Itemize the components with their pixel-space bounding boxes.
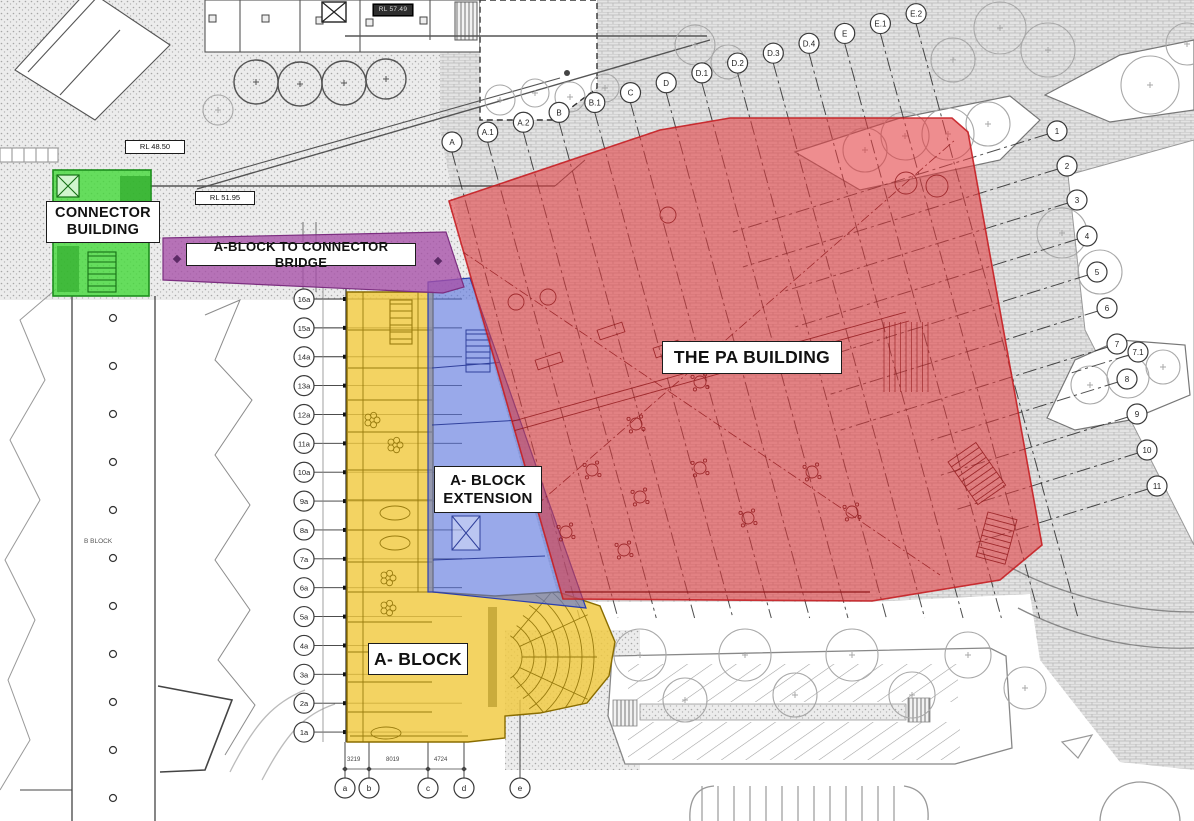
svg-text:1a: 1a xyxy=(300,728,309,737)
grid-bubble-10a: 10a xyxy=(294,462,314,482)
grid-bubble-e: e xyxy=(510,778,530,798)
svg-text:E.1: E.1 xyxy=(874,20,887,29)
svg-text:10a: 10a xyxy=(298,468,311,477)
svg-text:E: E xyxy=(842,29,847,38)
label-pa-building: THE PA BUILDING xyxy=(662,341,842,374)
svg-text:e: e xyxy=(518,784,523,793)
grid-bubble-8a: 8a xyxy=(294,520,314,540)
grid-bubble-13a: 13a xyxy=(294,376,314,396)
grid-bubble-D.4: D.4 xyxy=(799,33,819,53)
grid-bubble-12a: 12a xyxy=(294,404,314,424)
site-plan-canvas: 16a15a14a13a12a11a10a9a8a7a6a5a4a3a2a1aA… xyxy=(0,0,1194,821)
svg-text:16a: 16a xyxy=(298,295,311,304)
label-bridge: A-BLOCK TO CONNECTOR BRIDGE xyxy=(186,243,416,266)
grid-bubble-11a: 11a xyxy=(294,433,314,453)
label-a-block: A- BLOCK xyxy=(368,643,468,675)
grid-bubble-a: a xyxy=(335,778,355,798)
grid-bubble-2a: 2a xyxy=(294,693,314,713)
svg-text:6: 6 xyxy=(1105,304,1110,313)
svg-text:E.2: E.2 xyxy=(910,10,923,19)
svg-text:4: 4 xyxy=(1085,232,1090,241)
grid-bubble-E.2: E.2 xyxy=(906,4,926,24)
svg-text:6a: 6a xyxy=(300,584,309,593)
label-rl-top: RL 57.49 xyxy=(373,4,413,16)
svg-text:8: 8 xyxy=(1125,375,1130,384)
label-connector-building: CONNECTOR BUILDING xyxy=(46,201,160,243)
grid-bubble-B.1: B.1 xyxy=(585,93,605,113)
grid-bubble-D.2: D.2 xyxy=(728,53,748,73)
grid-bubble-1: 1 xyxy=(1047,121,1067,141)
svg-text:d: d xyxy=(462,784,466,793)
grid-bubble-B: B xyxy=(549,102,569,122)
grid-bubble-7: 7 xyxy=(1107,334,1127,354)
svg-text:A.1: A.1 xyxy=(482,128,495,137)
svg-text:12a: 12a xyxy=(298,410,311,419)
grid-bubble-14a: 14a xyxy=(294,347,314,367)
svg-text:4a: 4a xyxy=(300,641,309,650)
svg-text:7: 7 xyxy=(1115,340,1120,349)
grid-bubble-3: 3 xyxy=(1067,190,1087,210)
svg-text:8a: 8a xyxy=(300,526,309,535)
svg-text:3a: 3a xyxy=(300,670,309,679)
dim-cd: 4724 xyxy=(434,757,447,763)
grid-bubble-8: 8 xyxy=(1117,369,1137,389)
svg-text:b: b xyxy=(367,784,372,793)
grid-bubble-15a: 15a xyxy=(294,318,314,338)
grid-bubble-E.1: E.1 xyxy=(870,14,890,34)
grid-bubble-16a: 16a xyxy=(294,289,314,309)
label-rl-upper: RL 48.50 xyxy=(125,140,185,154)
svg-text:3: 3 xyxy=(1075,196,1080,205)
svg-text:11a: 11a xyxy=(298,439,311,448)
grid-bubble-1a: 1a xyxy=(294,722,314,742)
svg-text:D.1: D.1 xyxy=(696,69,709,78)
svg-text:13a: 13a xyxy=(298,382,311,391)
left-road xyxy=(0,222,335,821)
grid-bubble-2: 2 xyxy=(1057,156,1077,176)
grid-bubble-6a: 6a xyxy=(294,578,314,598)
svg-text:14a: 14a xyxy=(298,353,311,362)
svg-text:2a: 2a xyxy=(300,699,309,708)
svg-text:9: 9 xyxy=(1135,410,1140,419)
dim-ab: 3219 xyxy=(347,757,360,763)
svg-text:11: 11 xyxy=(1153,482,1162,491)
svg-text:10: 10 xyxy=(1143,446,1152,455)
site-plan-drawing: 16a15a14a13a12a11a10a9a8a7a6a5a4a3a2a1aA… xyxy=(0,0,1194,821)
svg-text:7.1: 7.1 xyxy=(1132,348,1144,357)
svg-text:B.1: B.1 xyxy=(589,99,602,108)
svg-text:D.3: D.3 xyxy=(767,49,780,58)
grid-bubble-5a: 5a xyxy=(294,607,314,627)
grid-bubble-9a: 9a xyxy=(294,491,314,511)
grid-bubble-10: 10 xyxy=(1137,440,1157,460)
grid-bubble-7a: 7a xyxy=(294,549,314,569)
grid-bubble-b: b xyxy=(359,778,379,798)
grid-bubble-D: D xyxy=(656,73,676,93)
grid-bubble-6: 6 xyxy=(1097,298,1117,318)
grid-bubble-D.1: D.1 xyxy=(692,63,712,83)
svg-text:A: A xyxy=(449,138,455,147)
svg-text:D.4: D.4 xyxy=(803,39,816,48)
svg-text:2: 2 xyxy=(1065,162,1070,171)
svg-text:A.2: A.2 xyxy=(517,118,530,127)
grid-bubble-11: 11 xyxy=(1147,476,1167,496)
svg-text:7a: 7a xyxy=(300,555,309,564)
svg-text:9a: 9a xyxy=(300,497,309,506)
svg-text:15a: 15a xyxy=(298,324,311,333)
grid-bubble-4: 4 xyxy=(1077,226,1097,246)
svg-text:5a: 5a xyxy=(300,613,309,622)
grid-bubble-7.1: 7.1 xyxy=(1128,342,1148,362)
grid-bubble-9: 9 xyxy=(1127,404,1147,424)
svg-text:5: 5 xyxy=(1095,268,1100,277)
grid-bubble-5: 5 xyxy=(1087,262,1107,282)
label-b-block: B BLOCK xyxy=(84,538,112,545)
svg-text:c: c xyxy=(426,784,430,793)
label-rl-lower: RL 51.95 xyxy=(195,191,255,205)
grid-bubble-A: A xyxy=(442,132,462,152)
grid-bubble-E: E xyxy=(835,23,855,43)
grid-bubble-3a: 3a xyxy=(294,664,314,684)
svg-text:D.2: D.2 xyxy=(731,59,744,68)
grid-bubble-A.1: A.1 xyxy=(478,122,498,142)
dim-bc: 8019 xyxy=(386,757,399,763)
svg-text:a: a xyxy=(343,784,348,793)
grid-bubble-A.2: A.2 xyxy=(513,112,533,132)
grid-bubble-4a: 4a xyxy=(294,635,314,655)
svg-text:D: D xyxy=(663,79,669,88)
grid-bubble-d: d xyxy=(454,778,474,798)
svg-text:C: C xyxy=(628,89,634,98)
grid-bubble-c: c xyxy=(418,778,438,798)
svg-text:B: B xyxy=(556,108,561,117)
grid-bubble-C: C xyxy=(621,83,641,103)
svg-text:1: 1 xyxy=(1055,127,1060,136)
label-a-block-extension: A- BLOCK EXTENSION xyxy=(434,466,542,513)
grid-bubble-D.3: D.3 xyxy=(763,43,783,63)
dimension-line xyxy=(342,766,467,772)
